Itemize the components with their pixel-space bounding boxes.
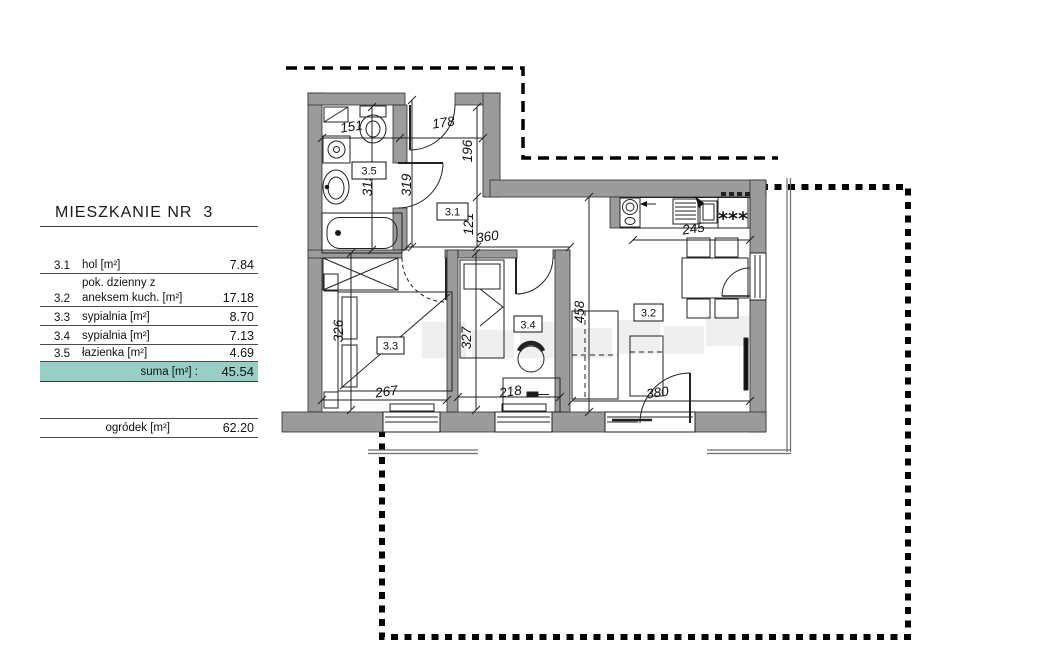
- dim-bedroom1-depth: 326: [331, 319, 346, 342]
- window-bedroom2: [495, 404, 552, 432]
- chair: [687, 238, 710, 257]
- legend-panel: MIESZKANIE NR 3 3.1 hol [m²] 7.84 3.2 po…: [40, 204, 258, 438]
- legend-spacer: [40, 382, 258, 418]
- dim-bedroom1-width: 267: [373, 382, 399, 400]
- room-label-bedroom1: 3.3: [377, 337, 404, 354]
- chair: [687, 299, 710, 318]
- dim-hall-width: 178: [431, 113, 456, 131]
- bedroom2-door: [516, 258, 553, 294]
- legend-row-bedroom1: 3.3 sypialnia [m²] 8.70: [40, 307, 258, 326]
- legend-row-hall: 3.1 hol [m²] 7.84: [40, 227, 258, 274]
- room-name: pok. dzienny z aneksem kuch. [m²]: [82, 276, 208, 305]
- room-number: 3.1: [54, 260, 82, 272]
- room-number: 3.5: [54, 348, 82, 360]
- tv: [744, 338, 748, 390]
- legend-row-bedroom2: 3.4 sypialnia [m²] 7.13: [40, 326, 258, 345]
- dim-living-width: 380: [645, 383, 670, 401]
- side-window-leaf: [722, 268, 750, 296]
- chair: [715, 238, 738, 257]
- svg-text:3.1: 3.1: [445, 207, 460, 219]
- dim-living-depth: 458: [572, 300, 587, 323]
- bedroom1-door: [402, 258, 446, 302]
- washing-machine: [323, 136, 350, 163]
- dim-bath-width: 151: [339, 118, 363, 136]
- garden-value: 62.20: [208, 421, 254, 435]
- room-area: 4.69: [208, 346, 254, 360]
- room-area: 7.13: [208, 329, 254, 343]
- legend-garden-row: ogródek [m²] 62.20: [40, 418, 258, 438]
- dim-counter: 245: [680, 219, 706, 237]
- room-name: sypialnia [m²]: [82, 310, 208, 324]
- round-sink: [620, 198, 640, 227]
- bathtub: [322, 213, 402, 253]
- chair: [715, 299, 738, 318]
- dim-desk-width: 218: [497, 382, 523, 400]
- room-number: 3.3: [54, 312, 82, 324]
- room-area: 7.84: [208, 258, 254, 272]
- garden-label: ogródek [m²]: [44, 422, 208, 434]
- window-living-side: [750, 253, 766, 300]
- room-area: 8.70: [208, 310, 254, 324]
- toilet: [360, 106, 386, 143]
- legend-total-row: suma [m²] : 45.54: [40, 362, 258, 382]
- legend-title: MIESZKANIE NR 3: [40, 204, 258, 227]
- room-label-living: 3.2: [634, 304, 663, 321]
- legend-row-bathroom: 3.5 łazienka [m²] 4.69: [40, 345, 258, 362]
- dim-hall-length: 360: [475, 227, 500, 245]
- total-label: suma [m²] :: [54, 366, 208, 378]
- room-name: sypialnia [m²]: [82, 329, 208, 343]
- svg-text:3.4: 3.4: [520, 320, 535, 332]
- room-name: hol [m²]: [82, 258, 208, 272]
- floorplan-page: ***: [0, 0, 1057, 665]
- dining-table: [682, 238, 748, 318]
- dim-hall-depth: 319: [399, 173, 414, 196]
- svg-text:3.3: 3.3: [383, 341, 398, 353]
- arrow-icon: [640, 201, 656, 207]
- sink: [323, 170, 349, 204]
- room-label-hall: 3.1: [437, 203, 468, 220]
- room-label-bedroom2: 3.4: [514, 316, 542, 332]
- dim-bedroom2-depth: 327: [459, 326, 474, 349]
- svg-text:3.5: 3.5: [361, 166, 376, 178]
- dim-hall-height: 196: [460, 139, 475, 162]
- total-value: 45.54: [208, 364, 254, 379]
- room-number: 3.4: [54, 331, 82, 343]
- room-name: łazienka [m²]: [82, 346, 208, 360]
- window-bedroom1: [383, 404, 440, 432]
- legend-row-living: 3.2 pok. dzienny z aneksem kuch. [m²] 17…: [40, 274, 258, 307]
- room-number: 3.2: [54, 293, 82, 305]
- desk-item: [527, 392, 538, 397]
- room-area: 17.18: [208, 291, 254, 305]
- stove-burners: ***: [718, 208, 748, 230]
- room-label-bathroom: 3.5: [352, 162, 386, 179]
- svg-text:3.2: 3.2: [641, 308, 656, 320]
